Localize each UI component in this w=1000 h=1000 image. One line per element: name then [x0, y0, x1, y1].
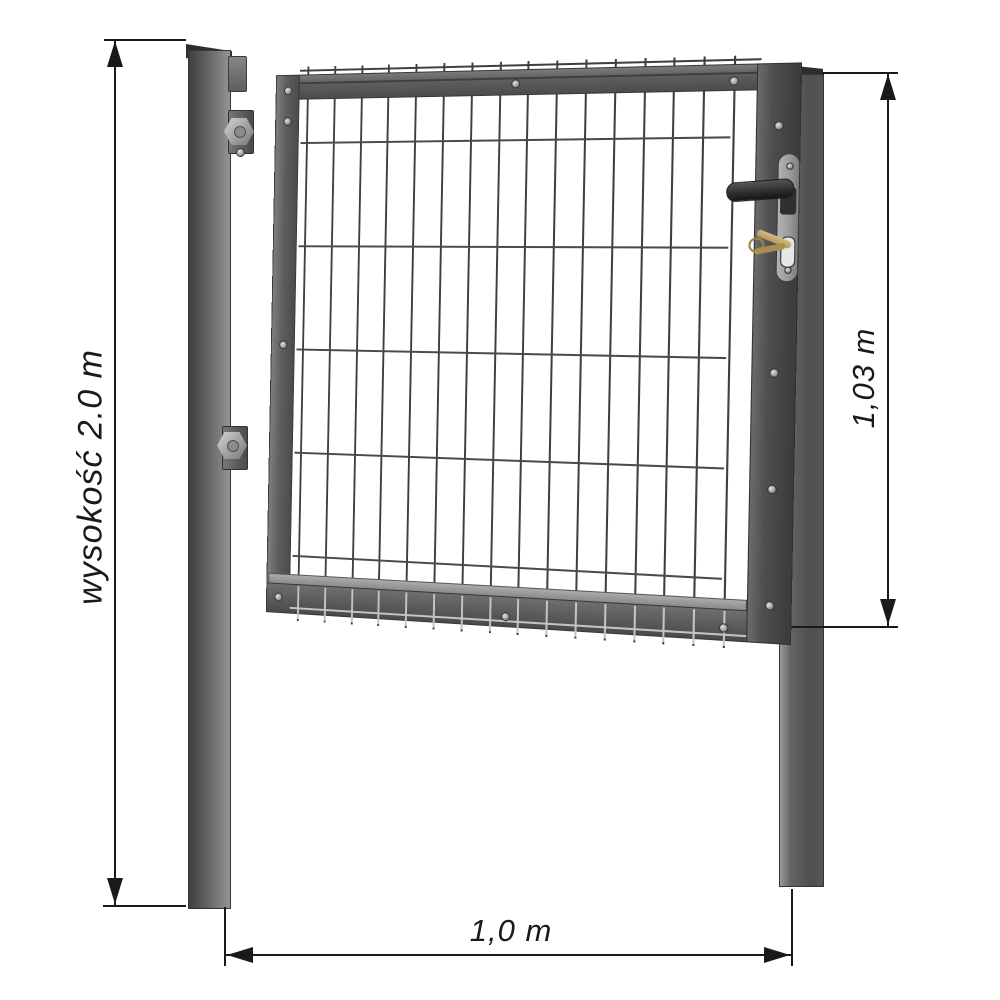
screw-icon: [279, 340, 287, 349]
mesh-wire-horizontal: [299, 245, 729, 248]
mesh-wire-vertical: [489, 62, 502, 633]
mesh-wire-vertical: [460, 62, 473, 631]
mesh-wire-vertical: [405, 64, 418, 628]
arrow-up-icon: [880, 74, 896, 100]
hinge-pin-icon: [234, 126, 246, 138]
dimension-tick: [224, 907, 226, 966]
dimension-tick: [103, 905, 186, 907]
mesh-wire-vertical: [517, 61, 530, 635]
hinge-pin-icon: [227, 440, 239, 452]
gate-panel: [266, 62, 802, 645]
mesh-wire-vertical: [633, 58, 646, 642]
mesh-wire-vertical: [723, 56, 736, 648]
arrow-left-icon: [227, 947, 253, 963]
mesh-wire-vertical: [324, 66, 337, 623]
dimension-tick: [791, 889, 793, 966]
mesh-wire-vertical: [692, 56, 705, 646]
screw-icon: [786, 163, 794, 170]
dimension-tick: [789, 626, 898, 628]
dimension-label-gate-height: 1,03 m: [846, 328, 882, 429]
dimension-label-gate-width: 1,0 m: [470, 913, 553, 949]
screw-icon: [765, 601, 775, 611]
mesh-wire-vertical: [297, 67, 309, 621]
screw-icon: [274, 592, 282, 601]
arrow-right-icon: [764, 947, 790, 963]
mesh-wire-vertical: [663, 57, 676, 644]
left-post: [188, 50, 231, 909]
arrow-up-icon: [107, 41, 123, 67]
arrow-down-icon: [107, 878, 123, 904]
mesh-wire-vertical: [433, 63, 446, 629]
mesh-wire-vertical: [546, 60, 559, 637]
mesh-wire-horizontal: [300, 136, 730, 144]
mesh-wire-vertical: [378, 65, 391, 627]
dimension-line: [114, 41, 116, 905]
screw-icon: [784, 267, 792, 274]
dimension-label-post-height: wysokość 2.0 m: [72, 349, 111, 605]
dimension-line: [226, 954, 791, 956]
mesh-wire-horizontal: [297, 348, 727, 359]
screw-icon: [767, 485, 777, 495]
dimension-line: [887, 74, 889, 626]
screw-icon: [719, 623, 729, 633]
mesh-wire-vertical: [604, 59, 617, 641]
left-post-hinge-mount: [228, 56, 247, 92]
mesh-wire-horizontal: [295, 452, 725, 470]
arrow-down-icon: [880, 599, 896, 625]
gate-dimension-diagram: wysokość 2.0 m 1,03 m 1,0 m: [0, 0, 1000, 1000]
screw-icon: [501, 612, 510, 622]
screw-icon: [236, 148, 245, 157]
keys: [751, 225, 799, 267]
mesh-wire-vertical: [350, 65, 363, 624]
mesh-wire-horizontal: [293, 555, 722, 580]
mesh-wire-vertical: [574, 60, 587, 639]
